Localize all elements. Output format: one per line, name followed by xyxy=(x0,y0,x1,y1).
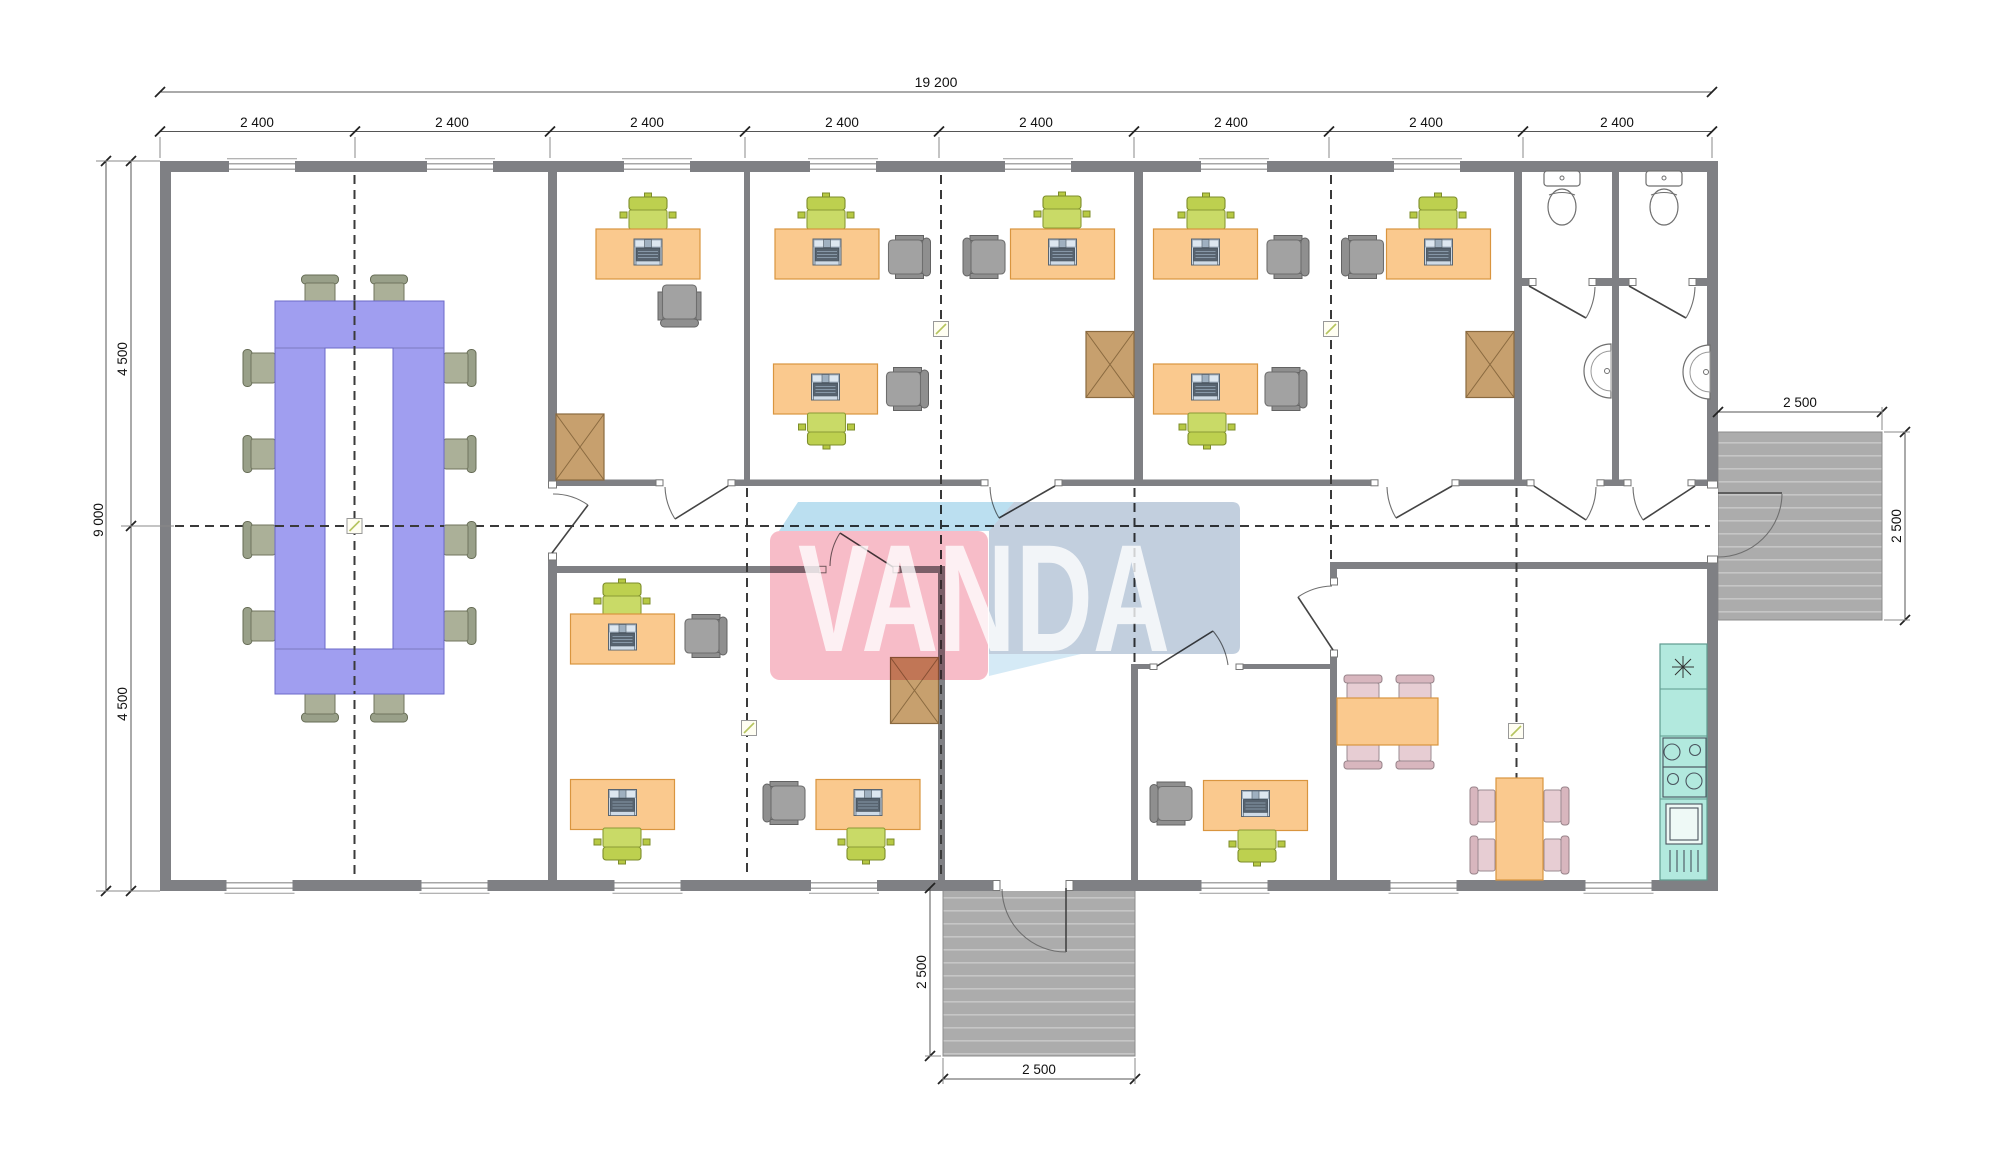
svg-text:2 500: 2 500 xyxy=(1783,395,1817,410)
svg-text:2 400: 2 400 xyxy=(240,115,274,130)
svg-text:2 400: 2 400 xyxy=(435,115,469,130)
svg-text:9 000: 9 000 xyxy=(91,503,106,537)
svg-text:VANDA: VANDA xyxy=(798,513,1170,684)
svg-text:2 400: 2 400 xyxy=(1214,115,1248,130)
svg-text:2 400: 2 400 xyxy=(1019,115,1053,130)
svg-text:2 500: 2 500 xyxy=(1022,1062,1056,1077)
svg-text:2 400: 2 400 xyxy=(1600,115,1634,130)
svg-text:2 400: 2 400 xyxy=(1409,115,1443,130)
svg-text:19 200: 19 200 xyxy=(915,74,958,90)
svg-text:2 400: 2 400 xyxy=(825,115,859,130)
svg-text:2 500: 2 500 xyxy=(914,955,929,989)
svg-text:2 500: 2 500 xyxy=(1889,509,1904,543)
svg-text:2 400: 2 400 xyxy=(630,115,664,130)
svg-text:4 500: 4 500 xyxy=(115,342,130,376)
svg-text:4 500: 4 500 xyxy=(115,687,130,721)
